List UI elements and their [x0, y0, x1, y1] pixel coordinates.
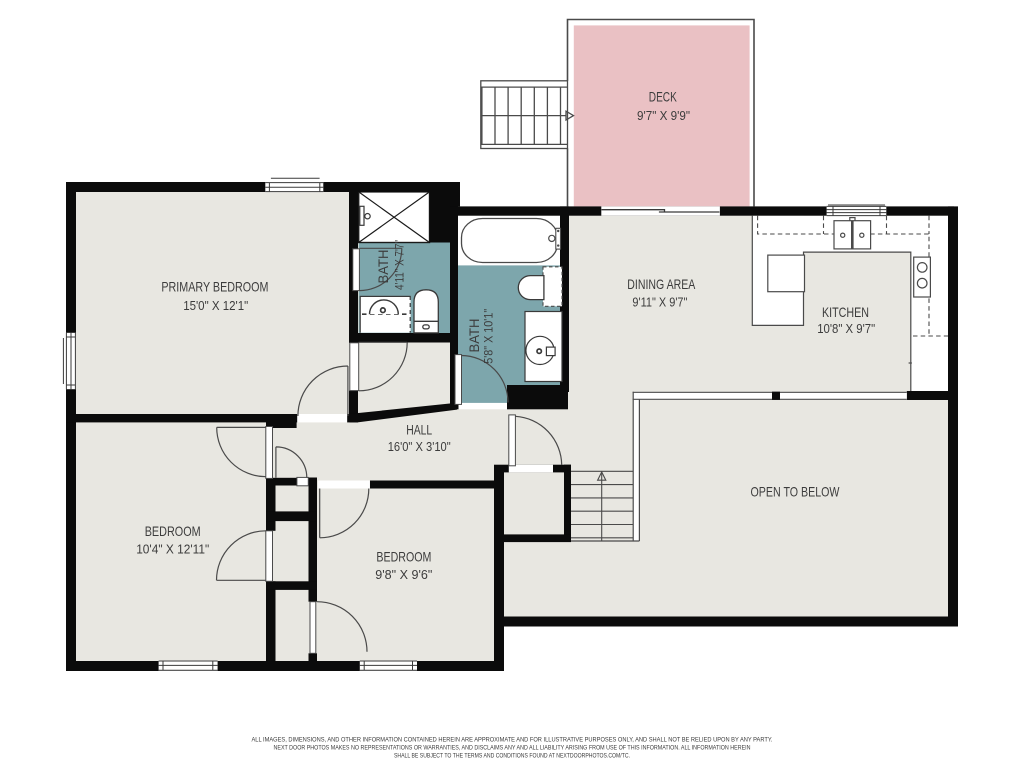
svg-text:10'4" X 12'11": 10'4" X 12'11": [136, 541, 209, 556]
svg-text:9'8" X 9'6": 9'8" X 9'6": [375, 567, 432, 582]
svg-text:BEDROOM: BEDROOM: [145, 523, 201, 539]
svg-text:DECK: DECK: [649, 89, 677, 105]
svg-text:OPEN TO BELOW: OPEN TO BELOW: [751, 483, 841, 499]
svg-text:9'7" X 9'9": 9'7" X 9'9": [637, 108, 690, 123]
svg-text:10'8" X 9'7": 10'8" X 9'7": [817, 321, 875, 336]
svg-text:BEDROOM: BEDROOM: [376, 548, 431, 564]
svg-text:5'8" X 10'1": 5'8" X 10'1": [482, 309, 496, 364]
svg-text:BATH: BATH: [375, 250, 391, 284]
svg-text:4'11" X 7'7": 4'11" X 7'7": [393, 240, 407, 290]
svg-text:BATH: BATH: [466, 319, 482, 353]
svg-text:NEXT DOOR PHOTOS MAKES NO REPR: NEXT DOOR PHOTOS MAKES NO REPRESENTATION…: [274, 745, 751, 752]
svg-text:SHALL BE SUBJECT TO THE TERMS: SHALL BE SUBJECT TO THE TERMS AND CONDIT…: [394, 753, 630, 760]
svg-text:ALL IMAGES, DIMENSIONS, AND OT: ALL IMAGES, DIMENSIONS, AND OTHER INFORM…: [252, 737, 773, 744]
svg-text:PRIMARY BEDROOM: PRIMARY BEDROOM: [161, 278, 268, 294]
svg-text:KITCHEN: KITCHEN: [822, 304, 869, 320]
svg-text:15'0" X 12'1": 15'0" X 12'1": [183, 298, 248, 313]
svg-text:HALL: HALL: [406, 421, 432, 437]
svg-text:DINING AREA: DINING AREA: [627, 276, 695, 292]
svg-text:9'11" X 9'7": 9'11" X 9'7": [632, 295, 687, 310]
svg-text:16'0" X 3'10": 16'0" X 3'10": [388, 439, 451, 454]
